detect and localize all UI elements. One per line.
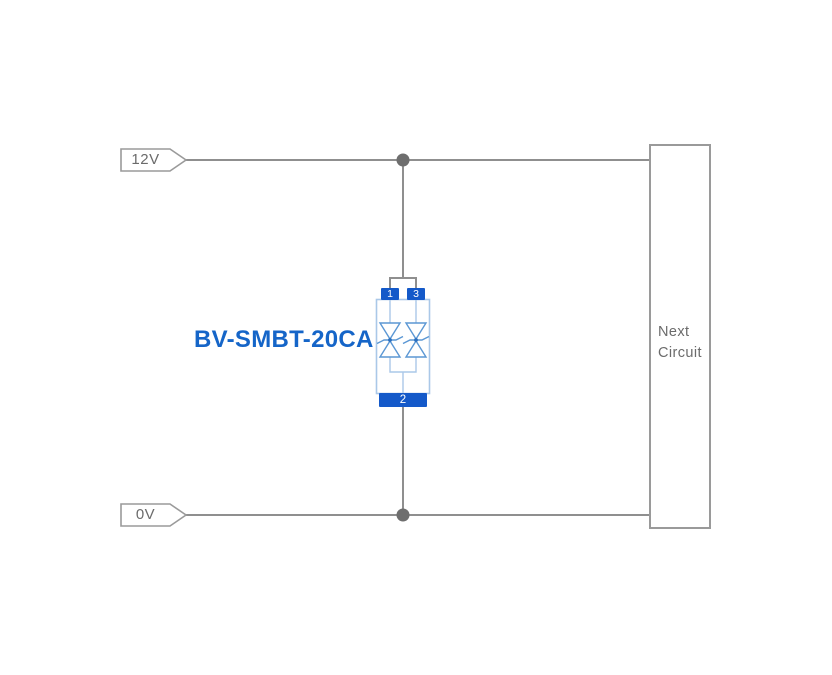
next-circuit-label-line2: Circuit — [658, 343, 702, 364]
top-junction-dot — [397, 154, 410, 167]
circuit-diagram: 12V 0V BV-SMBT-20CA 1 3 2 Next Circuit — [0, 0, 832, 675]
next-circuit-label-line1: Next — [658, 322, 702, 343]
rail-label-12v: 12V — [121, 149, 170, 171]
bottom-junction-dot — [397, 509, 410, 522]
pin-pad-3: 3 — [407, 288, 425, 300]
next-circuit-label: Next Circuit — [658, 322, 702, 364]
part-number-label: BV-SMBT-20CA — [194, 326, 359, 354]
pin-split-bracket-wire — [390, 278, 416, 288]
pin-pad-2: 2 — [379, 393, 427, 407]
circuit-diagram-canvas — [0, 0, 832, 675]
pin-pad-1: 1 — [381, 288, 399, 300]
rail-label-0v: 0V — [121, 504, 170, 526]
